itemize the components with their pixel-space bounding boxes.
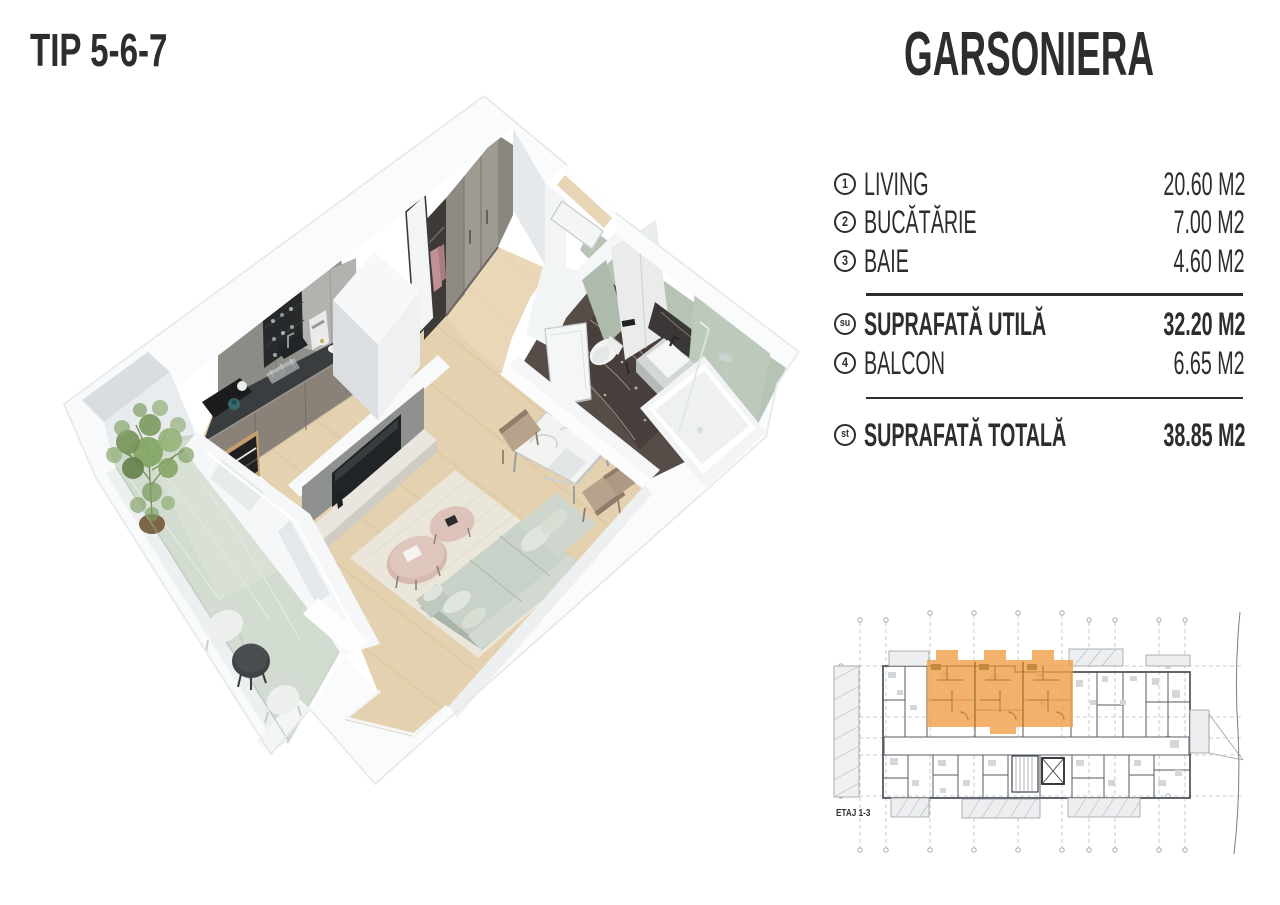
svg-text:ETAJ 1-3: ETAJ 1-3 — [836, 807, 870, 818]
